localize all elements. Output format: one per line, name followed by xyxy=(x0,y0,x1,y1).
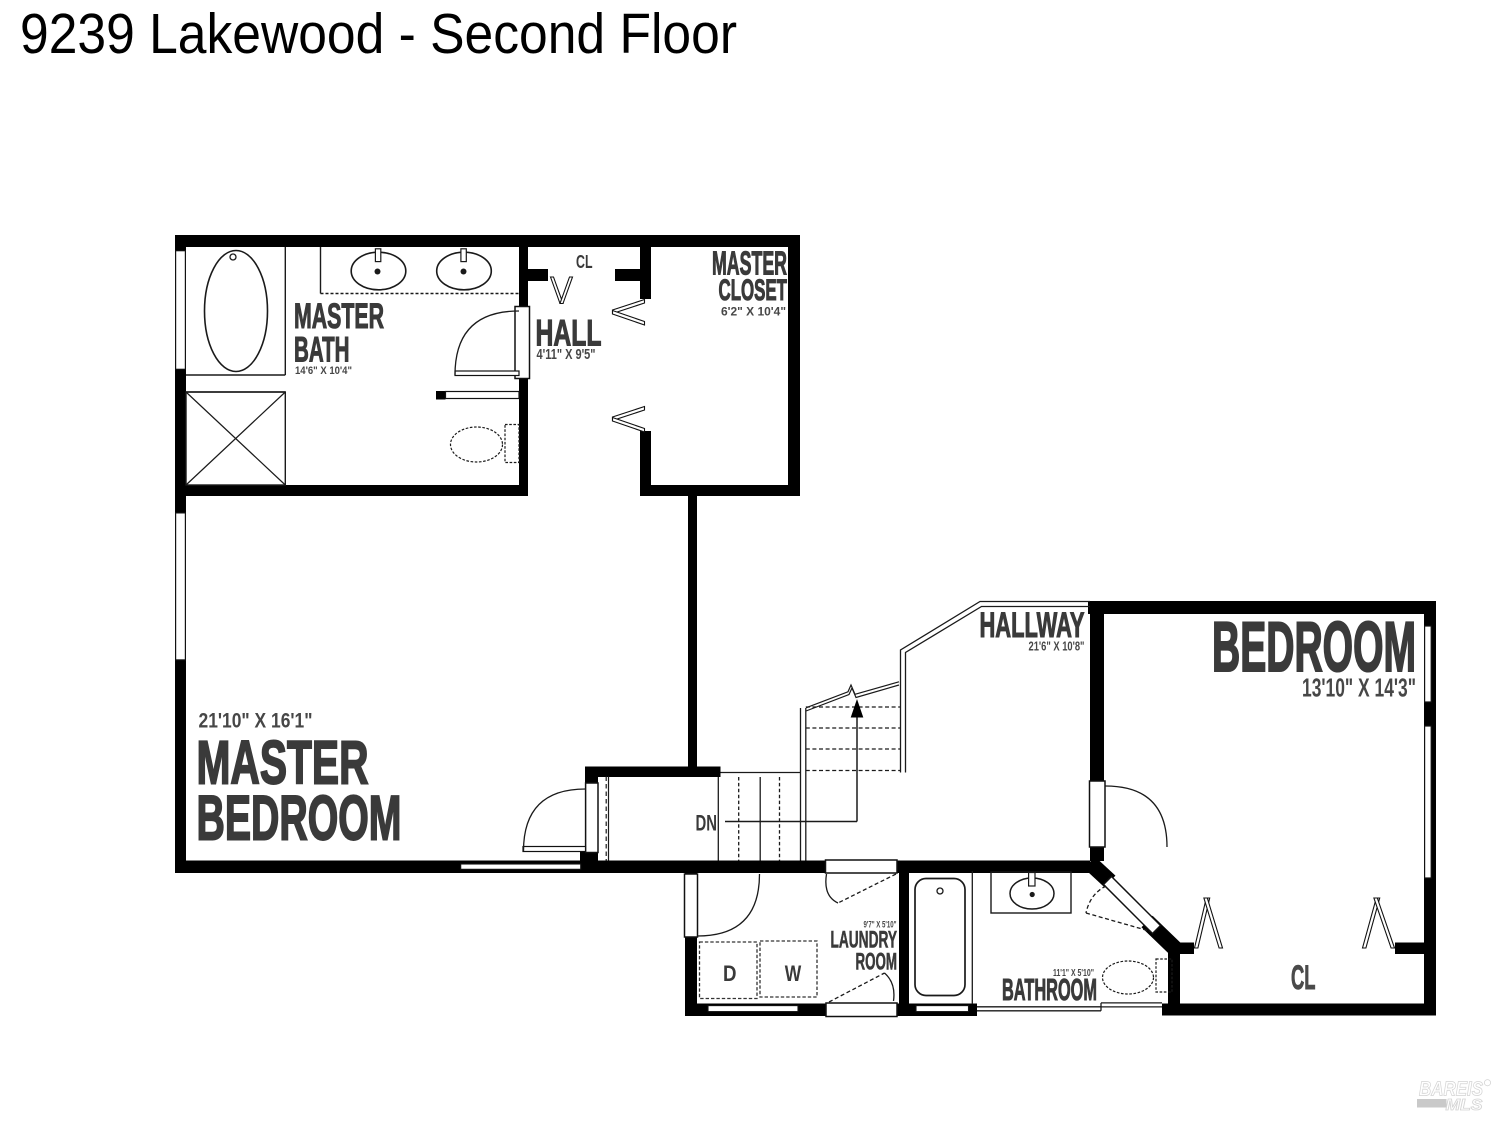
svg-text:CLOSET: CLOSET xyxy=(719,274,788,307)
svg-text:BATH: BATH xyxy=(294,330,350,369)
svg-text:6'2" X 10'4": 6'2" X 10'4" xyxy=(721,305,786,319)
svg-text:BEDROOM: BEDROOM xyxy=(197,784,402,854)
svg-text:BATHROOM: BATHROOM xyxy=(1002,973,1097,1007)
svg-text:ROOM: ROOM xyxy=(856,949,898,975)
svg-text:MLS: MLS xyxy=(1446,1097,1484,1114)
svg-text:DN: DN xyxy=(696,811,718,836)
svg-text:4'11" X 9'5": 4'11" X 9'5" xyxy=(537,347,596,363)
svg-text:CL: CL xyxy=(576,251,593,272)
svg-text:13'10" X 14'3": 13'10" X 14'3" xyxy=(1302,675,1416,703)
svg-text:9239 Lakewood - Second Floor: 9239 Lakewood - Second Floor xyxy=(20,2,737,66)
svg-text:CL: CL xyxy=(1291,959,1316,997)
svg-text:W: W xyxy=(785,961,802,986)
svg-text:21'6" X 10'8": 21'6" X 10'8" xyxy=(1029,640,1085,654)
svg-text:D: D xyxy=(723,961,737,986)
svg-text:14'6" X 10'4": 14'6" X 10'4" xyxy=(295,365,352,377)
